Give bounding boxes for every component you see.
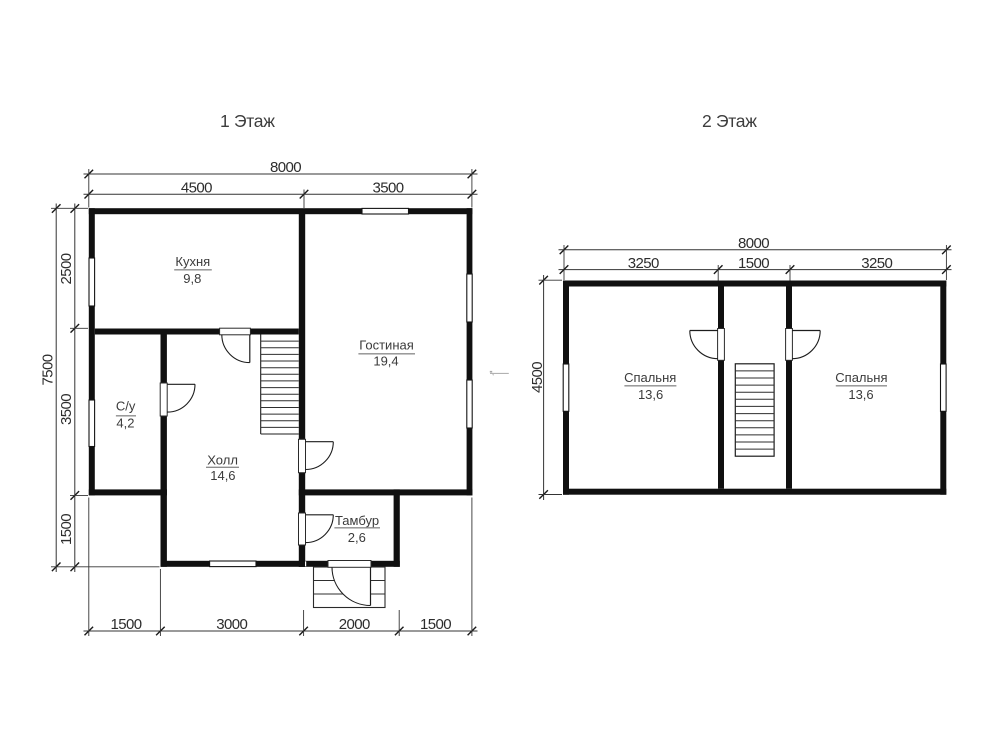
svg-text:3250: 3250 [628,255,659,272]
svg-text:3250: 3250 [861,255,892,272]
svg-text:8000: 8000 [270,159,301,176]
svg-text:Спальня: Спальня [624,370,676,385]
svg-text:1500: 1500 [58,514,75,545]
svg-text:13,6: 13,6 [638,387,663,402]
svg-text:4,2: 4,2 [116,416,134,431]
svg-text:9,8: 9,8 [183,271,201,286]
svg-text:1500: 1500 [420,616,451,633]
svg-text:14,6: 14,6 [210,468,235,483]
svg-text:2,6: 2,6 [348,530,366,545]
svg-text:8000: 8000 [738,235,769,252]
svg-text:7500: 7500 [40,354,57,385]
svg-text:3500: 3500 [58,394,75,425]
svg-text:19,4: 19,4 [373,354,398,369]
svg-text:Спальня: Спальня [835,370,887,385]
svg-text:С/у: С/у [116,399,136,414]
svg-text:Холл: Холл [207,453,238,468]
svg-text:1500: 1500 [738,255,769,272]
svg-text:Гостиная: Гостиная [359,338,414,353]
svg-text:Кухня: Кухня [175,254,210,269]
svg-text:13,6: 13,6 [848,387,873,402]
svg-text:3500: 3500 [373,179,404,196]
svg-text:1 Этаж: 1 Этаж [220,111,275,131]
svg-text:1500: 1500 [111,616,142,633]
svg-text:Тамбур: Тамбур [335,513,379,528]
svg-text:2 Этаж: 2 Этаж [702,111,757,131]
svg-text:3000: 3000 [216,616,247,633]
svg-text:4500: 4500 [529,362,546,393]
svg-text:2000: 2000 [339,616,370,633]
svg-text:4500: 4500 [181,179,212,196]
svg-text:2500: 2500 [58,253,75,284]
